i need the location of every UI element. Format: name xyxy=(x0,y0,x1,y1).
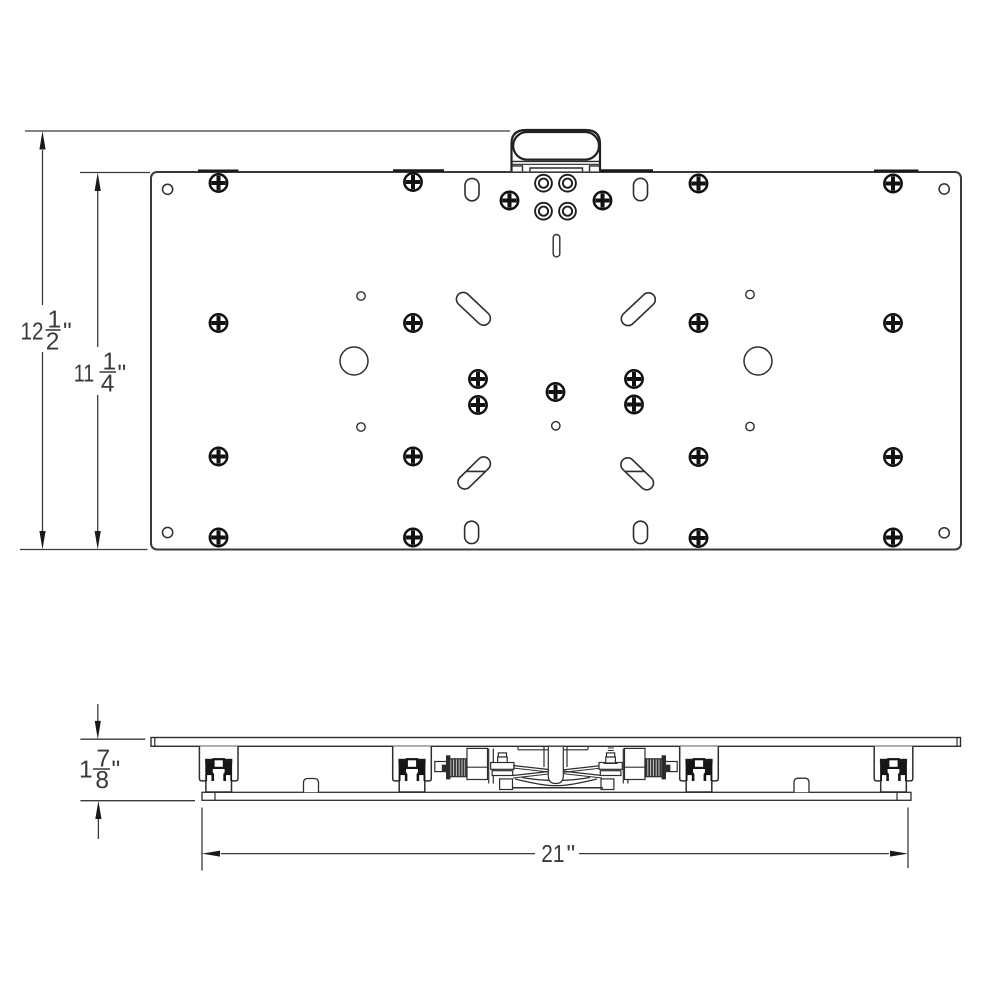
svg-text:4: 4 xyxy=(101,371,115,398)
svg-text:21: 21 xyxy=(541,841,564,868)
svg-text:1: 1 xyxy=(79,757,93,784)
svg-text:": " xyxy=(567,841,576,868)
svg-text:12: 12 xyxy=(21,319,44,346)
svg-text:": " xyxy=(118,360,127,387)
svg-text:8: 8 xyxy=(95,767,109,794)
svg-text:": " xyxy=(112,757,121,784)
svg-text:2: 2 xyxy=(46,328,60,355)
svg-text:11: 11 xyxy=(74,360,95,387)
svg-text:": " xyxy=(63,319,72,346)
